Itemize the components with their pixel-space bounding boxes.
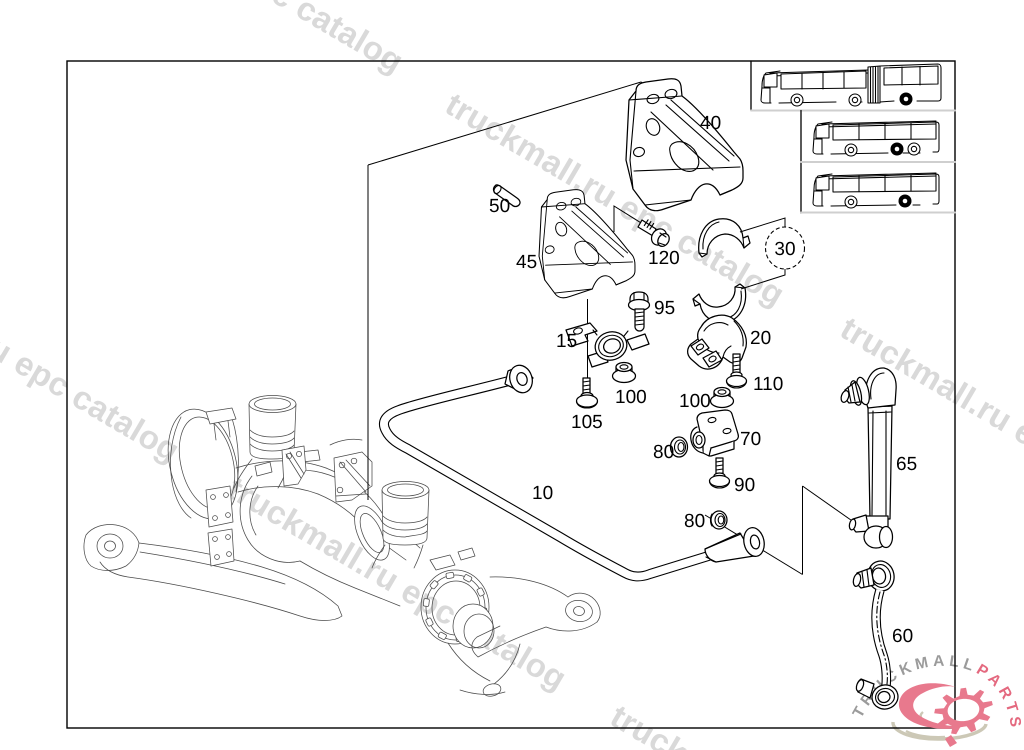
svg-text:120: 120 [648,248,680,269]
svg-text:20: 20 [750,328,771,349]
svg-text:80: 80 [653,442,674,463]
svg-text:65: 65 [896,454,917,475]
svg-text:110: 110 [753,374,783,395]
svg-text:15: 15 [556,331,577,352]
svg-text:40: 40 [700,113,721,134]
svg-text:90: 90 [734,475,755,496]
svg-text:100: 100 [679,391,711,412]
svg-text:80: 80 [684,511,705,532]
svg-text:95: 95 [654,298,675,319]
svg-text:30: 30 [774,239,795,260]
svg-text:105: 105 [571,412,603,433]
svg-text:60: 60 [892,626,913,647]
svg-text:50: 50 [489,196,510,217]
svg-text:45: 45 [516,252,537,273]
svg-text:70: 70 [740,429,761,450]
svg-text:10: 10 [532,483,553,504]
svg-text:100: 100 [615,387,647,408]
